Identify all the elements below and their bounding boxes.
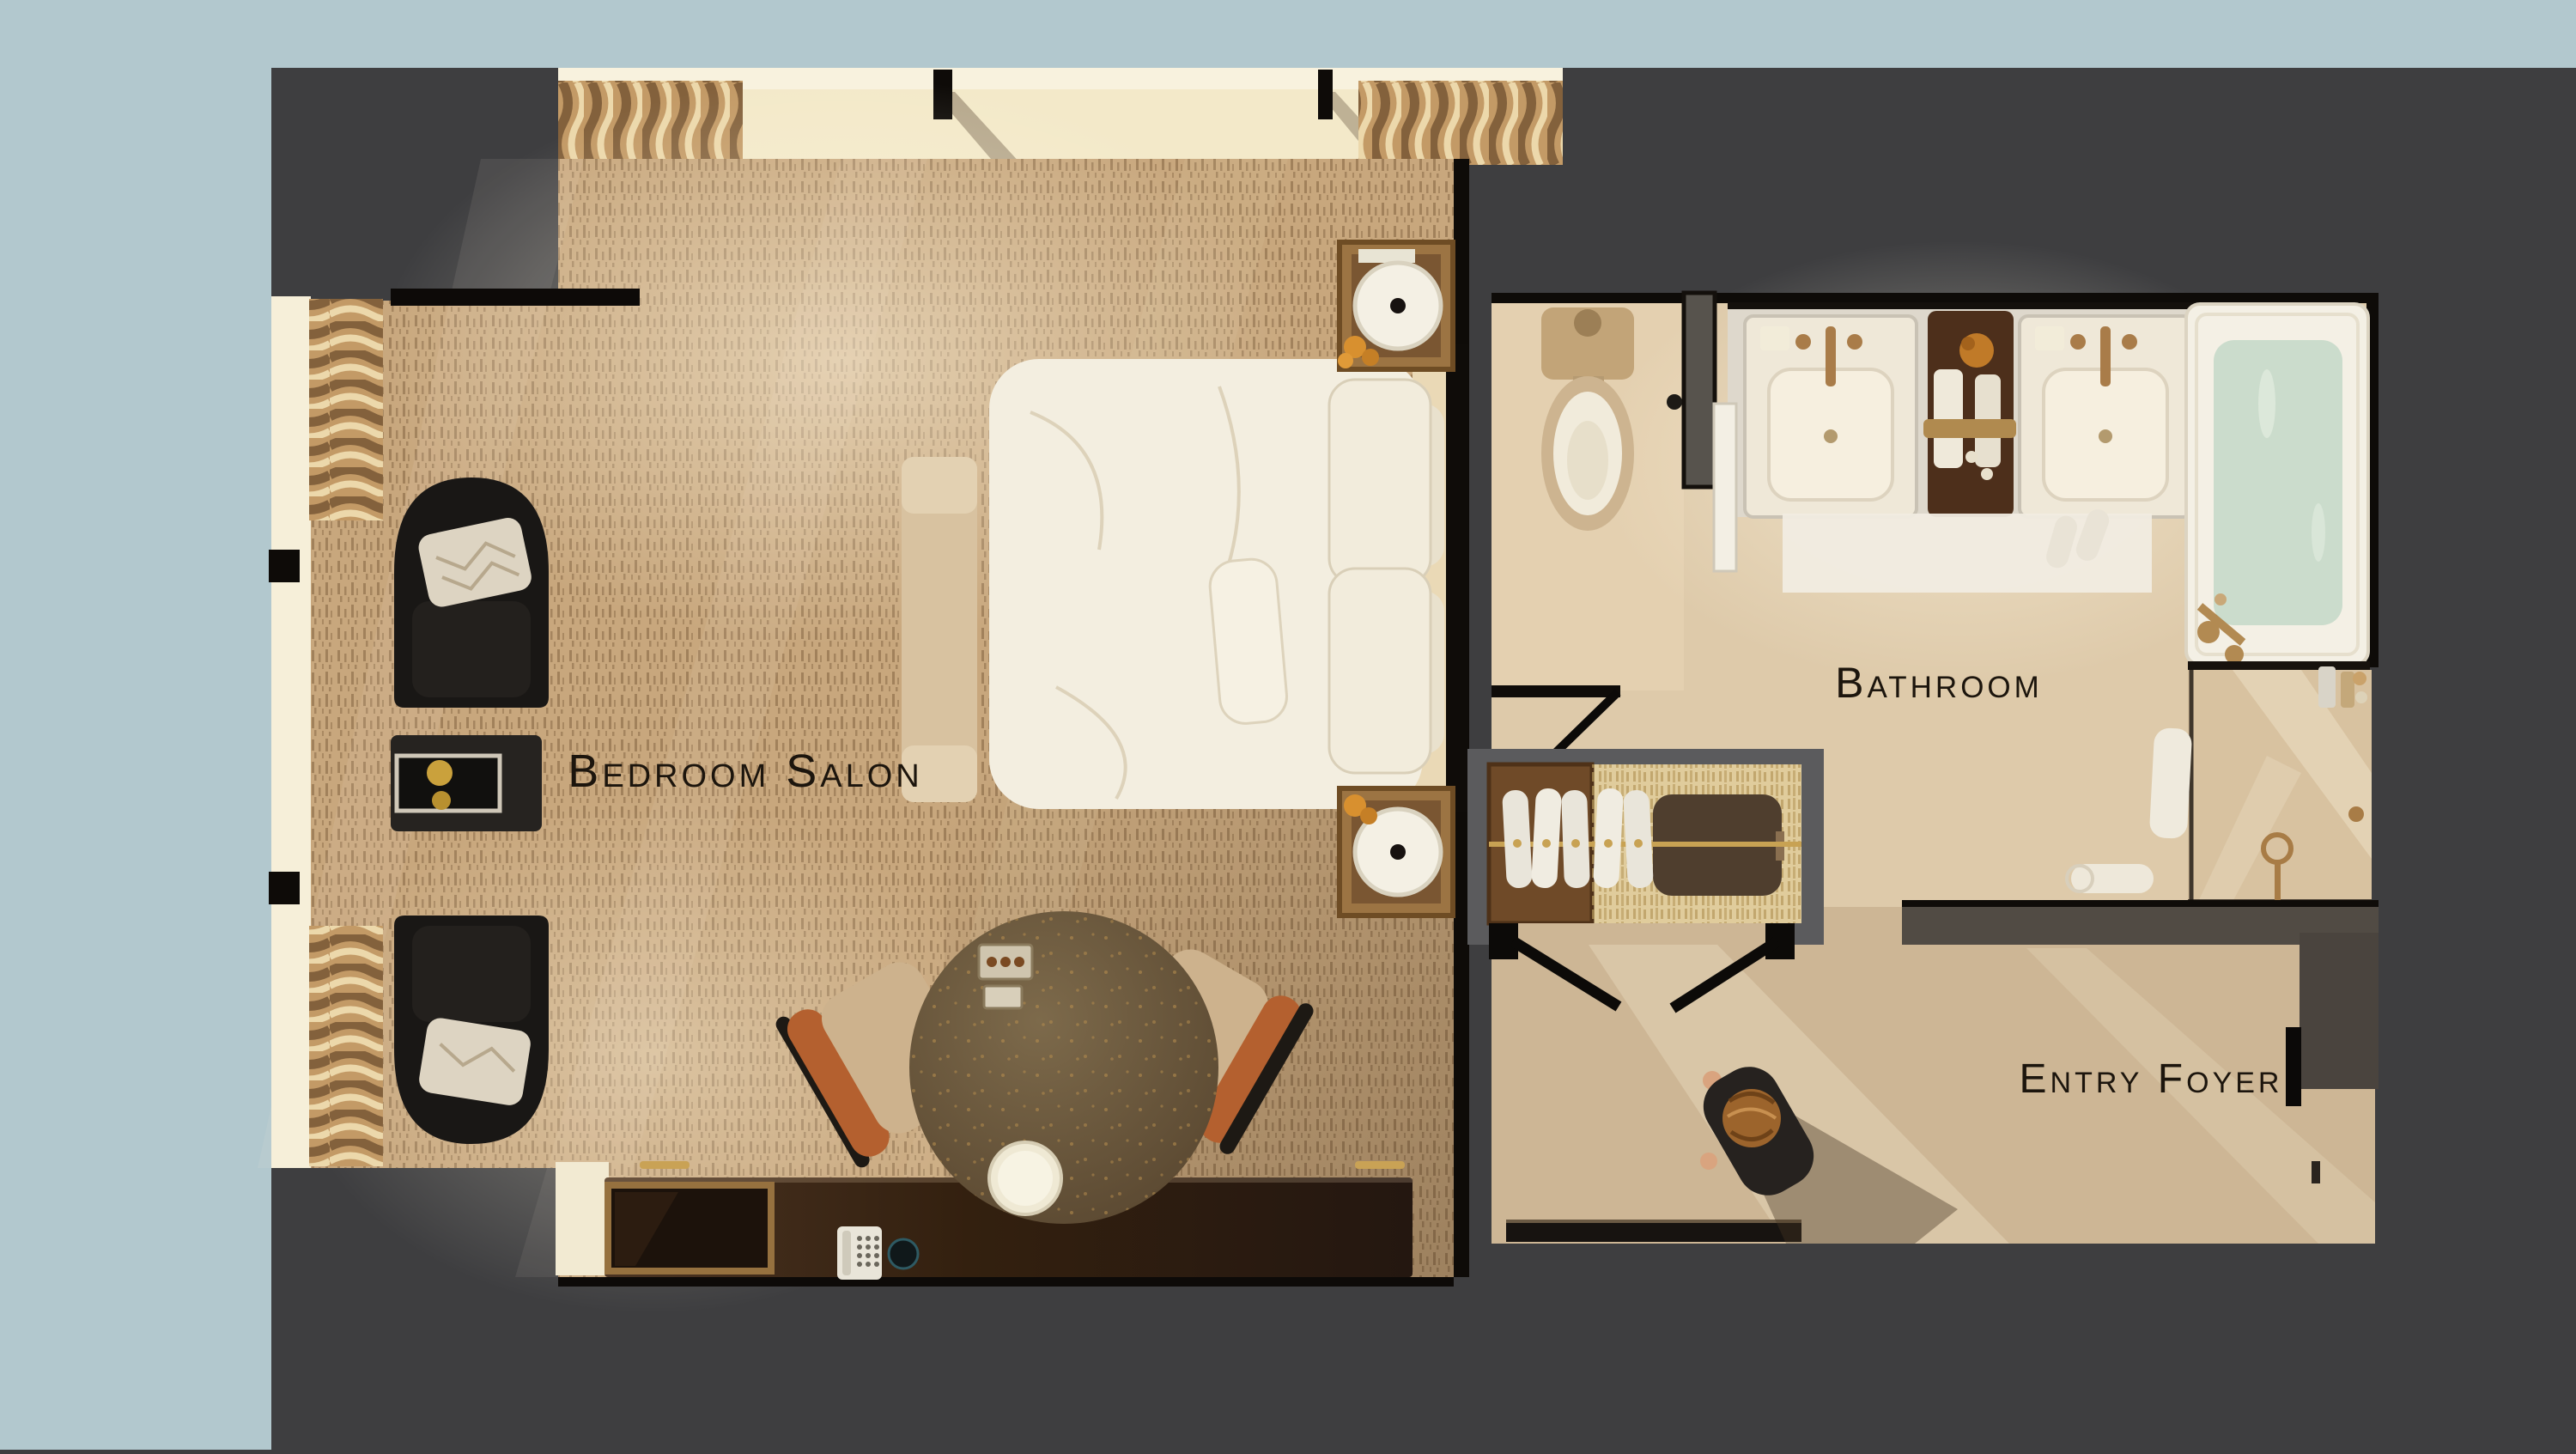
flush-button [1574, 309, 1601, 337]
water-glint [2312, 503, 2325, 562]
water-glint [2258, 369, 2275, 438]
roses [1362, 349, 1379, 366]
side-table [391, 735, 542, 831]
hanger-hook [1513, 839, 1522, 848]
wall-bathroom-top [1492, 293, 2376, 303]
nightstand-top [1338, 242, 1453, 369]
hanger-hook [1604, 839, 1613, 848]
wall-toilet-bottom [1492, 685, 1620, 697]
toiletry [2353, 672, 2366, 685]
door-hardware [2312, 1161, 2320, 1183]
armchair-bottom [394, 916, 549, 1144]
shampoo-bottle [2341, 672, 2354, 708]
curtain-left-bottom [309, 926, 383, 1166]
room-label-entry-foyer: Entry Foyer [2020, 1056, 2283, 1102]
telephone [837, 1226, 882, 1280]
faucet-handle [1795, 334, 1811, 350]
flowers [1961, 337, 1975, 350]
matting-top-band [0, 0, 2576, 68]
faucet [1826, 326, 1836, 386]
toilet-water [1567, 421, 1608, 500]
tub-overflow [2215, 593, 2227, 605]
hanger-hook [1571, 839, 1580, 848]
towel [1934, 369, 1963, 468]
wall-foyer-right-block [2300, 933, 2379, 1089]
shower-valve-stem [2275, 861, 2281, 900]
floorplan-render: Bedroom Salon [0, 0, 2576, 1450]
wall-return-bottom-left [556, 1162, 609, 1275]
bed-pillow [1329, 569, 1431, 773]
window-mullion [1318, 70, 1333, 119]
faucet-handle [2122, 334, 2137, 350]
curtain-left-top [309, 299, 383, 520]
room-label-bathroom: Bathroom [1835, 659, 2043, 707]
tub-valve [2225, 645, 2244, 664]
vanity-backsplash [1728, 302, 2198, 309]
throw-pillow [417, 1016, 532, 1107]
soap [1965, 451, 1978, 463]
drain [1824, 429, 1838, 443]
plate-center [998, 1151, 1053, 1206]
wall-toilet-divider [1684, 293, 1715, 487]
tray-handle [1923, 419, 2016, 438]
hanger-hook [1542, 839, 1551, 848]
gold-dish [432, 791, 451, 810]
wall-segment-top-left [391, 289, 640, 306]
faucet [2100, 326, 2111, 386]
bed-pillow [1329, 380, 1431, 584]
room-bedroom-salon: Bedroom Salon [258, 68, 1563, 1314]
telephone-handset [842, 1231, 851, 1275]
table-speckle [909, 911, 1218, 1224]
foot-bench-roll [902, 457, 977, 514]
floorplan-page: Bedroom Salon [0, 0, 2576, 1450]
lamp-finial [1390, 844, 1406, 860]
armchair-top [394, 478, 549, 708]
gold-dish [427, 760, 453, 786]
faucet-handle [1847, 334, 1862, 350]
roses [1338, 353, 1353, 368]
faucet-handle [2070, 334, 2086, 350]
soap-dish [1760, 326, 1789, 350]
shower-top-frame [2188, 661, 2370, 670]
hanger-hook [1634, 839, 1643, 848]
roses [1360, 807, 1377, 824]
shower-handle [2348, 806, 2364, 822]
hanging-towel [2149, 727, 2193, 839]
window-sill-left [271, 296, 311, 1168]
paper-holder [1667, 394, 1682, 410]
soap-dish [2035, 326, 2064, 350]
shower-valve [2263, 835, 2291, 862]
tub-valve [2197, 621, 2220, 643]
bathtub [2186, 304, 2368, 665]
seat-cushion [412, 926, 531, 1022]
bed-accent-pillow [1208, 557, 1289, 726]
seat-cushion [412, 601, 531, 697]
toiletry [2355, 691, 2367, 703]
shampoo-bottle [2318, 666, 2336, 708]
drain [2099, 429, 2112, 443]
bed-headboard [1446, 344, 1468, 812]
lamp-finial [1390, 298, 1406, 313]
closet-robes [1502, 788, 1654, 888]
wall-bedroom-bottom [558, 1277, 1454, 1287]
smart-speaker [889, 1239, 918, 1268]
room-label-bedroom-salon: Bedroom Salon [568, 745, 923, 797]
notepad [1358, 249, 1415, 263]
curtain-top-right [1358, 81, 1563, 165]
threshold-edge [1506, 1220, 1801, 1223]
window-frame-mark [269, 550, 300, 582]
person-foot [1700, 1153, 1717, 1170]
soap [1981, 468, 1993, 480]
oval-table [909, 911, 1218, 1224]
wall-below-shower-edge [1902, 900, 2379, 907]
entry-door-threshold [1506, 1223, 1801, 1242]
closet-opening [1518, 923, 1765, 945]
matting-left-band [0, 0, 271, 1450]
bathroom-door-leaf [1714, 404, 1736, 571]
vanity-sink-right [2020, 316, 2191, 517]
reading-light [1355, 1161, 1405, 1169]
wall-foyer-right-jamb [2286, 1027, 2301, 1106]
vanity-sink-left [1745, 316, 1917, 517]
nightstand-bottom [1340, 788, 1453, 916]
rolled-towel [2071, 864, 2154, 893]
foyer-passage [1824, 907, 1902, 948]
tub-water [2214, 340, 2342, 625]
gift-box [984, 986, 1022, 1008]
window-frame-mark [269, 872, 300, 904]
reading-light [640, 1161, 690, 1169]
